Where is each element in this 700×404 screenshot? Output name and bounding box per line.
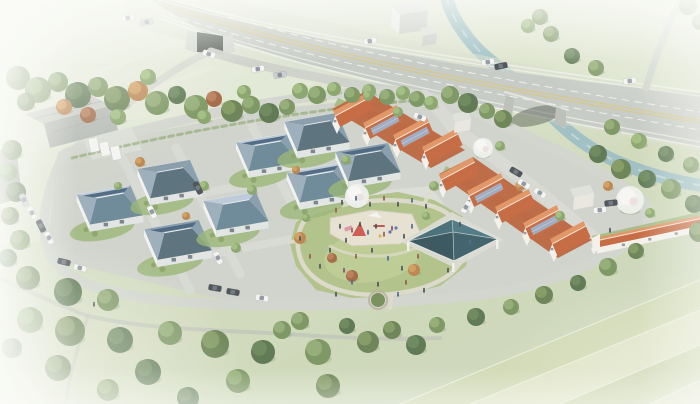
scene-svg: [0, 0, 700, 404]
car: [593, 206, 607, 213]
car: [604, 199, 618, 206]
site-aerial-rendering: [0, 0, 700, 404]
